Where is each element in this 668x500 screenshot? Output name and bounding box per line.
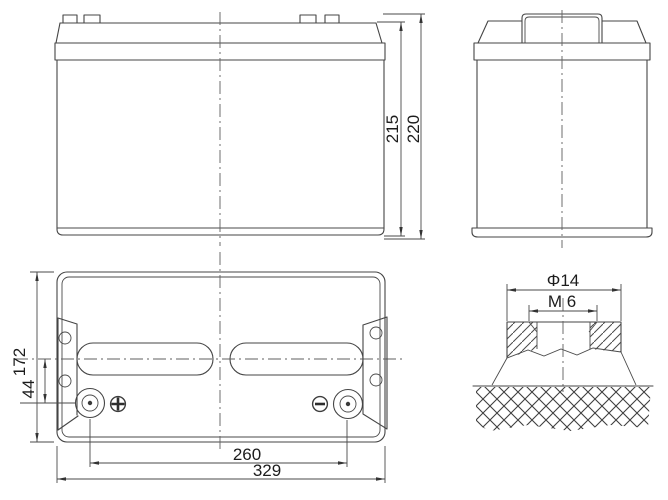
top-body-inner — [62, 277, 380, 437]
side-view — [472, 10, 652, 248]
positive-terminal-post — [76, 389, 105, 418]
negative-terminal-post — [334, 390, 363, 419]
battery-dimension-drawing: 215 220 — [0, 0, 668, 500]
dimension-depth: 172 — [10, 272, 54, 442]
front-body-outline — [57, 60, 384, 235]
dim-label-phi14: Φ14 — [547, 271, 579, 290]
dim-label-m6: M 6 — [548, 292, 576, 311]
dimension-terminal-pitch: 260 — [90, 419, 347, 467]
top-view: 172 44 260 329 — [10, 252, 402, 483]
dim-label-215: 215 — [383, 115, 402, 143]
dimension-height-case: 215 — [377, 22, 405, 236]
front-view: 215 220 — [55, 12, 425, 246]
side-terminal-cover-right — [602, 21, 646, 43]
top-handle-slot-left — [77, 343, 213, 375]
dimension-length: 329 — [57, 446, 385, 483]
dim-label-44: 44 — [19, 380, 38, 399]
side-terminal-cover-left — [478, 21, 522, 43]
drawing-svg: 215 220 — [0, 0, 668, 500]
break-line-tails — [492, 352, 636, 385]
dim-label-220: 220 — [404, 115, 423, 143]
front-terminal-posts — [63, 15, 339, 23]
bushing-hatch-right — [590, 322, 621, 352]
dim-label-172: 172 — [10, 348, 29, 376]
negative-terminal-icon — [313, 397, 328, 412]
lid-material-crosshatch — [476, 387, 651, 431]
mounting-bracket-right — [363, 317, 387, 429]
mounting-bracket-left — [58, 318, 78, 430]
dim-label-329: 329 — [253, 461, 281, 480]
top-body-outer — [57, 272, 385, 442]
front-lid-chamfers — [56, 23, 382, 43]
positive-terminal-icon — [111, 397, 126, 412]
terminal-detail-view: Φ14 M 6 — [473, 271, 653, 431]
